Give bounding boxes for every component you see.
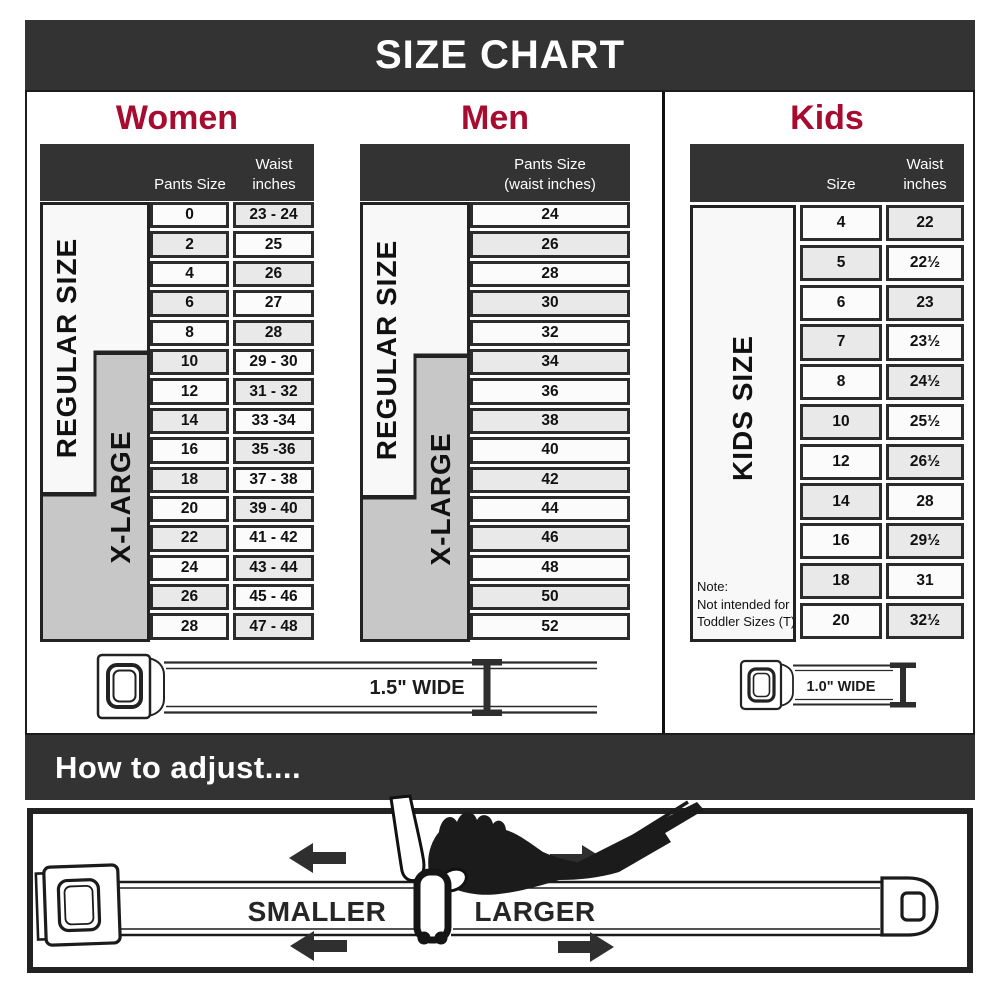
women-pants-size-cell: 22 (150, 525, 229, 551)
men-pants-size-cell: 28 (470, 261, 630, 287)
kids-waist-cell: 24½ (886, 364, 964, 400)
kids-waist-cell: 32½ (886, 603, 964, 639)
kids-size-cell: 8 (800, 364, 882, 400)
kids-size-table: Size Waist inches KIDS SIZE Note: Not in… (690, 144, 964, 644)
women-waist-cell: 39 - 40 (233, 496, 314, 522)
women-col1-header: Pants Size (150, 175, 230, 195)
arrow-right-icon (558, 932, 614, 962)
kids-size-cell: 20 (800, 603, 882, 639)
smaller-label: SMALLER (248, 896, 387, 927)
women-waist-cell: 31 - 32 (233, 378, 314, 404)
kids-belt-illustration: 1.0" WIDE (737, 655, 927, 715)
kids-note: Note: Not intended for Toddler Sizes (T) (697, 578, 795, 631)
men-xlarge-label: X-LARGE (425, 433, 456, 566)
arrow-left-icon (289, 843, 346, 873)
women-pants-size-cell: 24 (150, 555, 229, 581)
kids-section-heading: Kids (690, 96, 964, 140)
women-regular-size-label: REGULAR SIZE (51, 238, 82, 458)
belt-slider (417, 872, 448, 945)
kids-size-cell: 14 (800, 483, 882, 519)
men-pants-size-cell: 24 (470, 202, 630, 228)
kids-waist-cell: 25½ (886, 404, 964, 440)
men-pants-size-cell: 32 (470, 320, 630, 346)
kids-size-cell: 16 (800, 523, 882, 559)
men-pants-size-cell: 40 (470, 437, 630, 463)
women-pants-size-cell: 0 (150, 202, 229, 228)
men-pants-size-cell: 48 (470, 555, 630, 581)
kids-size-cell: 7 (800, 324, 882, 360)
men-table-header: Pants Size (waist inches) (360, 144, 630, 201)
women-pants-size-cell: 2 (150, 231, 229, 257)
kids-waist-cell: 29½ (886, 523, 964, 559)
belt-tip (882, 878, 937, 935)
kids-size-cell: 6 (800, 285, 882, 321)
men-pants-size-cell: 36 (470, 378, 630, 404)
kids-waist-cell: 28 (886, 483, 964, 519)
kids-size-band: KIDS SIZE Note: Not intended for Toddler… (690, 205, 796, 642)
men-pants-size-cell: 46 (470, 525, 630, 551)
kids-size-cell: 12 (800, 444, 882, 480)
kids-waist-cell: 31 (886, 563, 964, 599)
adult-belt-width-label: 1.5" WIDE (369, 677, 464, 699)
women-waist-cell: 25 (233, 231, 314, 257)
women-pants-size-cell: 28 (150, 613, 229, 639)
men-size-band: REGULAR SIZE X-LARGE (360, 202, 470, 642)
women-pants-size-cell: 12 (150, 378, 229, 404)
men-regular-size-label: REGULAR SIZE (371, 240, 402, 460)
women-waist-cell: 35 -36 (233, 437, 314, 463)
women-waist-cell: 37 - 38 (233, 467, 314, 493)
women-pants-size-cell: 16 (150, 437, 229, 463)
women-pants-size-cell: 26 (150, 584, 229, 610)
women-waist-cell: 47 - 48 (233, 613, 314, 639)
width-measure-icon (890, 663, 916, 708)
index-finger (391, 796, 424, 881)
men-rows: 24 26 28 30 32 34 36 38 40 42 (470, 202, 630, 640)
women-xlarge-label: X-LARGE (105, 431, 136, 564)
women-pants-size-cell: 14 (150, 408, 229, 434)
men-pants-size-cell: 38 (470, 408, 630, 434)
women-waist-cell: 23 - 24 (233, 202, 314, 228)
men-pants-size-cell: 42 (470, 467, 630, 493)
title-bar: SIZE CHART (25, 20, 975, 90)
women-waist-cell: 43 - 44 (233, 555, 314, 581)
men-pants-size-cell: 26 (470, 231, 630, 257)
women-table-header: Pants Size Waist inches (40, 144, 314, 201)
men-pants-size-cell: 30 (470, 290, 630, 316)
how-to-adjust-bar: How to adjust.... (25, 735, 975, 800)
men-pants-size-cell: 34 (470, 349, 630, 375)
larger-label: LARGER (474, 896, 595, 927)
women-pants-size-cell: 18 (150, 467, 229, 493)
women-pants-size-cell: 10 (150, 349, 229, 375)
women-col2-header: Waist inches (234, 155, 314, 196)
women-waist-cell: 28 (233, 320, 314, 346)
women-rows: 0 23 - 24 2 25 4 26 6 27 8 28 10 29 - 30 (150, 202, 314, 640)
seatbelt-buckle-icon (36, 865, 121, 946)
women-pants-size-cell: 20 (150, 496, 229, 522)
men-size-table: Pants Size (waist inches) REGULAR SIZE X… (360, 144, 630, 644)
kids-waist-cell: 23 (886, 285, 964, 321)
women-waist-cell: 29 - 30 (233, 349, 314, 375)
women-pants-size-cell: 8 (150, 320, 229, 346)
adult-belt-illustration: 1.5" WIDE (92, 650, 607, 725)
kids-waist-cell: 22 (886, 205, 964, 241)
men-pants-size-cell: 44 (470, 496, 630, 522)
kids-rows: 4 22 5 22½ 6 23 7 23½ 8 24½ 10 25½ (800, 205, 964, 639)
women-pants-size-cell: 4 (150, 261, 229, 287)
kids-size-label: KIDS SIZE (727, 335, 759, 481)
seatbelt-buckle-icon (98, 655, 164, 718)
kids-waist-cell: 26½ (886, 444, 964, 480)
women-size-band: REGULAR SIZE X-LARGE (40, 202, 150, 642)
men-pants-size-cell: 52 (470, 613, 630, 639)
women-section-heading: Women (40, 96, 314, 140)
men-col-header: Pants Size (waist inches) (470, 155, 630, 196)
kids-size-cell: 10 (800, 404, 882, 440)
men-pants-size-cell: 50 (470, 584, 630, 610)
kids-waist-cell: 22½ (886, 245, 964, 281)
adjustment-diagram-box: SMALLER LARGER (27, 808, 973, 973)
how-to-adjust-heading: How to adjust.... (55, 750, 301, 786)
kids-col2-header: Waist inches (886, 155, 964, 196)
page-title: SIZE CHART (375, 33, 625, 78)
kids-size-cell: 4 (800, 205, 882, 241)
women-waist-cell: 27 (233, 290, 314, 316)
size-chart-page: SIZE CHART Women Men Kids Pants Size Wai… (0, 0, 1000, 1000)
seatbelt-buckle-icon (741, 661, 793, 709)
width-measure-icon (472, 659, 502, 716)
kids-table-header: Size Waist inches (690, 144, 964, 202)
men-section-heading: Men (360, 96, 630, 140)
women-waist-cell: 33 -34 (233, 408, 314, 434)
kids-belt-width-label: 1.0" WIDE (807, 679, 876, 695)
kids-size-cell: 5 (800, 245, 882, 281)
kids-size-cell: 18 (800, 563, 882, 599)
adjustment-diagram: SMALLER LARGER (33, 814, 967, 967)
kids-waist-cell: 23½ (886, 324, 964, 360)
women-waist-cell: 41 - 42 (233, 525, 314, 551)
women-waist-cell: 45 - 46 (233, 584, 314, 610)
size-chart-panel: Women Men Kids Pants Size Waist inches R… (25, 90, 975, 735)
section-divider (662, 92, 665, 733)
women-size-table: Pants Size Waist inches REGULAR SIZE X-L… (40, 144, 314, 644)
kids-col1-header: Size (800, 175, 882, 195)
women-pants-size-cell: 6 (150, 290, 229, 316)
women-waist-cell: 26 (233, 261, 314, 287)
